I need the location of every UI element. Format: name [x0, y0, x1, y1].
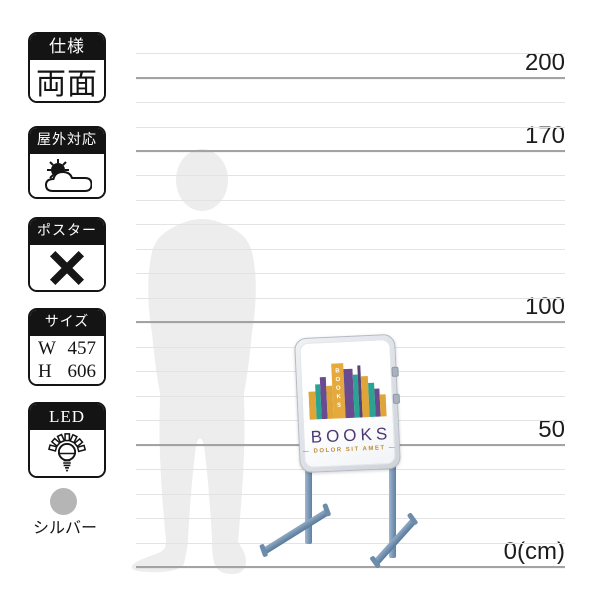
book-spine-vertical-letter: O [335, 386, 340, 392]
sign-stand: BOOKS BOOKS — DOLOR SIT AMET — [0, 0, 600, 600]
book-spine-vertical-letter: S [336, 403, 340, 409]
book-spine-vertical-letter: O [335, 377, 340, 383]
books-logo: BOOKS BOOKS — DOLOR SIT AMET — [296, 359, 399, 455]
stand-foot-left [262, 508, 330, 554]
sign-board: BOOKS BOOKS — DOLOR SIT AMET — [294, 334, 401, 473]
book-spines-illustration: BOOKS [307, 359, 388, 420]
book-spine [379, 394, 386, 416]
book-spine [308, 391, 316, 419]
